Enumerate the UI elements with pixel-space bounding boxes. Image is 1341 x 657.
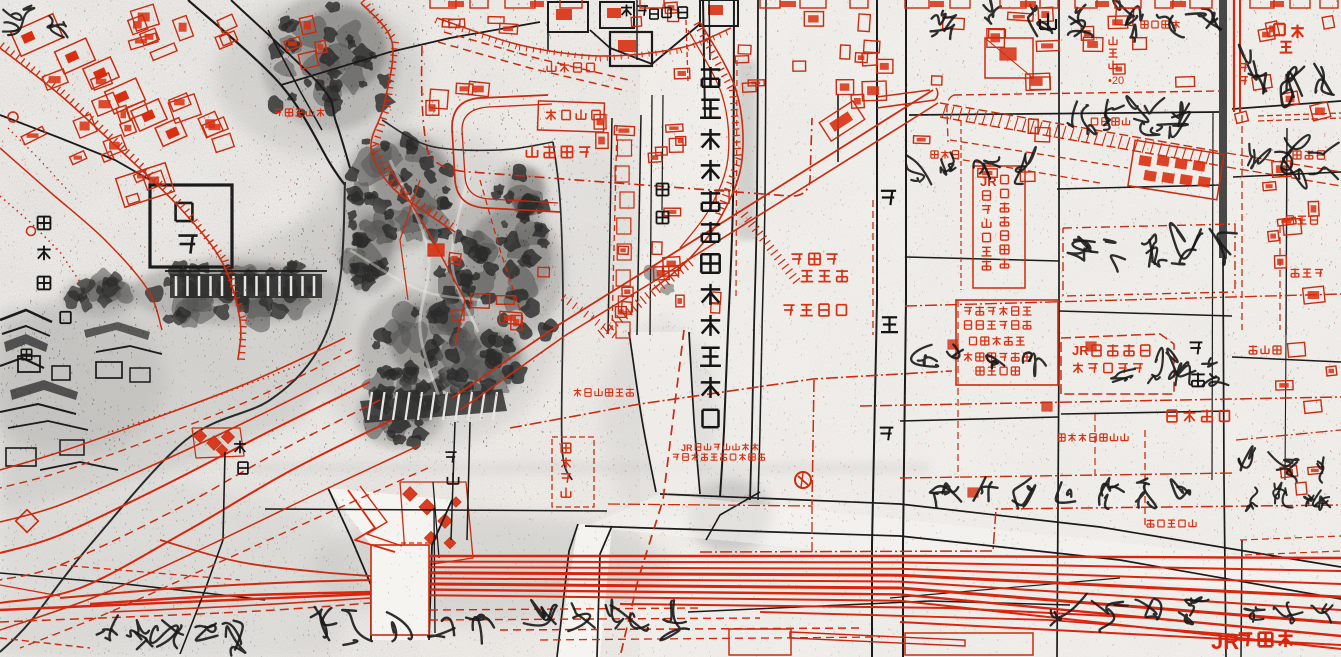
svg-text:JR: JR <box>1211 629 1239 654</box>
svg-text:JR: JR <box>1072 343 1089 358</box>
svg-text:•20: •20 <box>1108 75 1124 87</box>
svg-text:JR: JR <box>681 443 693 453</box>
